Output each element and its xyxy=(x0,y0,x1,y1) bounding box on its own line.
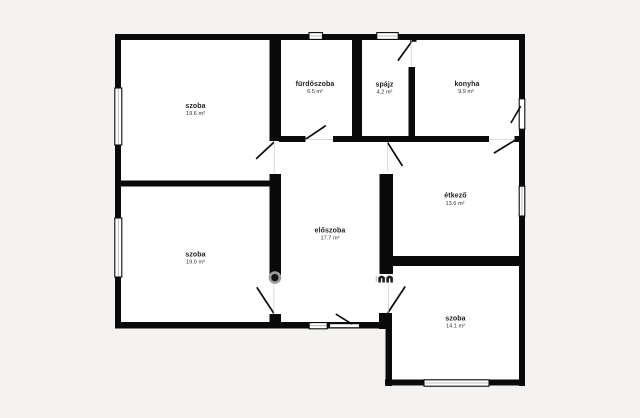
svg-text:19.6 m²: 19.6 m² xyxy=(186,111,205,117)
svg-text:4.2 m²: 4.2 m² xyxy=(377,89,393,95)
svg-text:szoba: szoba xyxy=(185,103,205,110)
svg-text:fürdőszoba: fürdőszoba xyxy=(296,81,335,88)
svg-text:9.9 m²: 9.9 m² xyxy=(458,89,474,95)
svg-text:konyha: konyha xyxy=(454,81,479,88)
svg-text:19.0 m²: 19.0 m² xyxy=(186,260,205,266)
svg-text:szoba: szoba xyxy=(185,252,205,259)
svg-text:13.6 m²: 13.6 m² xyxy=(446,201,465,207)
svg-text:szoba: szoba xyxy=(445,316,465,323)
svg-text:14.1 m²: 14.1 m² xyxy=(446,323,465,329)
svg-text:előszoba: előszoba xyxy=(315,228,346,235)
svg-text:spájz: spájz xyxy=(375,81,393,88)
svg-text:étkező: étkező xyxy=(444,193,466,200)
svg-text:6.5 m²: 6.5 m² xyxy=(307,89,323,95)
svg-text:17.7 m²: 17.7 m² xyxy=(321,235,340,241)
